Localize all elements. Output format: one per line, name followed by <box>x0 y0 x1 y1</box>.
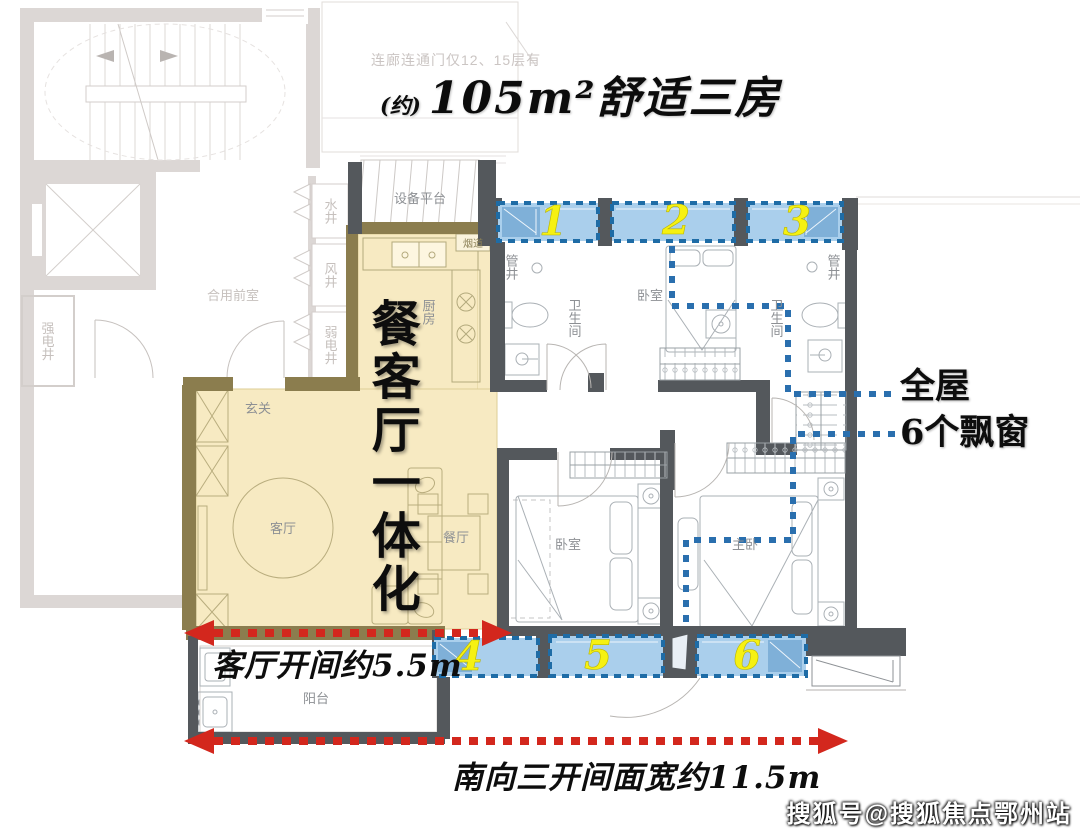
strong-elec-shaft-label: 强电井 <box>40 322 55 362</box>
page-title: (约) 105m²舒适三房 <box>380 62 781 126</box>
floorplan-canvas: 合用前室 强电井 水井 风井 弱电井 设备平台 烟道 厨房 玄关 客厅 餐厅 阳… <box>0 0 1080 833</box>
water-shaft-label: 水井 <box>323 198 338 225</box>
bay-number-6: 6 <box>733 632 761 679</box>
title-main: 105m²舒适三房 <box>429 62 781 126</box>
dim-living-label: 客厅开间约5.5m <box>212 640 463 685</box>
bedroom-bl-label: 卧室 <box>555 537 581 552</box>
balcony-label: 阳台 <box>303 691 329 706</box>
weak-elec-shaft-label: 弱电井 <box>323 326 338 366</box>
bedroom-top-label: 卧室 <box>637 288 663 303</box>
staircase <box>45 24 285 160</box>
slogan-vertical: 餐客厅一体化 <box>360 298 424 616</box>
bedroom-top-furniture <box>666 246 736 352</box>
bay-number-2: 2 <box>661 197 690 244</box>
watermark: 搜狐号@搜狐焦点鄂州站 <box>787 794 1072 829</box>
flue-label: 烟道 <box>463 237 483 250</box>
elevator <box>30 170 156 290</box>
shared-lobby-label: 合用前室 <box>207 288 259 303</box>
equipment-platform-label: 设备平台 <box>394 191 446 206</box>
bay-number-1: 1 <box>539 198 567 245</box>
pipe-shaft-2-label: 管井 <box>826 254 841 281</box>
title-approx: (约) <box>380 90 421 126</box>
bay-callout-lines <box>672 246 895 628</box>
pipe-shaft-1-label: 管井 <box>504 254 519 281</box>
bay-number-3: 3 <box>783 198 811 245</box>
living-label: 客厅 <box>270 521 296 536</box>
master-bedroom-label: 主卧 <box>732 537 758 552</box>
bay-callout-line2: 6个飘窗 <box>900 410 1029 456</box>
dining-label: 餐厅 <box>443 530 469 545</box>
bay-callout-line1: 全屋 <box>900 364 1029 410</box>
dim-south-label: 南向三开间面宽约11.5m <box>452 752 821 797</box>
bay-callout-text: 全屋 6个飘窗 <box>900 364 1029 456</box>
air-shaft-label: 风井 <box>323 262 338 289</box>
bathroom-2-label: 卫生间 <box>769 299 784 338</box>
entry-label: 玄关 <box>245 401 271 416</box>
master-furniture <box>678 478 844 628</box>
bay-number-5: 5 <box>584 632 612 679</box>
bedroom-bl-furniture <box>504 484 664 624</box>
bathroom-1-label: 卫生间 <box>567 299 582 338</box>
